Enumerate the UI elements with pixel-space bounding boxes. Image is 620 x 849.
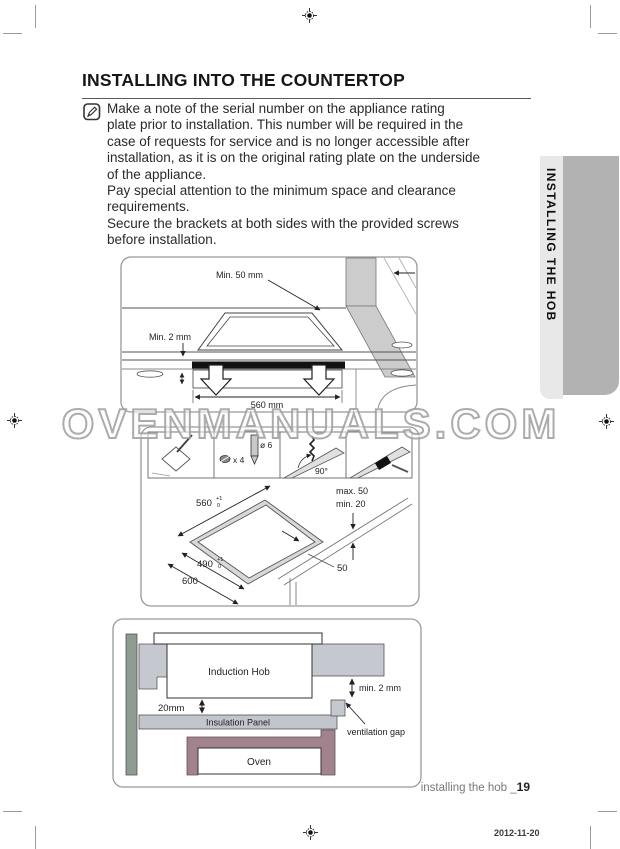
footer-label: installing the hob _: [421, 782, 517, 794]
svg-text:50: 50: [337, 563, 348, 574]
chapter-tab: INSTALLING THE HOB: [540, 156, 619, 399]
chapter-tab-shade: [563, 156, 619, 395]
dim-counter-depth: 600: [168, 564, 238, 604]
registration-mark-right: [599, 414, 614, 429]
svg-text:ventilation gap: ventilation gap: [347, 727, 405, 737]
crop-mark: [590, 826, 591, 849]
registration-mark-bottom: [303, 825, 318, 840]
crop-mark: [3, 33, 22, 34]
diagram-cross-section: Induction Hob Insulation Panel 20mm min.…: [112, 618, 422, 788]
chapter-tab-label: INSTALLING THE HOB: [544, 168, 558, 393]
svg-text:min. 2 mm: min. 2 mm: [359, 683, 401, 693]
footer: installing the hob _19: [300, 780, 530, 794]
manual-page: INSTALLING INTO THE COUNTERTOP Make a no…: [0, 0, 620, 849]
insert-arrows: [201, 365, 334, 395]
svg-text:0: 0: [218, 564, 221, 570]
svg-text:0: 0: [217, 503, 220, 509]
dim-min-50mm: Min. 50 mm: [216, 270, 415, 310]
induction-hob-label: Induction Hob: [208, 667, 270, 678]
diagram-wall-clearance: Min. 2 mm Min. 50 mm 560 mm: [120, 256, 418, 413]
cabinet-step: [331, 700, 345, 716]
watermark: OVENMANUALS.COM: [46, 400, 576, 448]
ventilation-gap-callout: ventilation gap: [346, 703, 405, 737]
diagram-cutout-dimensions: x 4 ø 6 90° 560 +1: [140, 426, 420, 607]
insulation-panel-label: Insulation Panel: [206, 718, 270, 728]
note-pencil-icon: [83, 103, 101, 121]
svg-text:+1: +1: [216, 496, 222, 502]
registration-mark-top: [302, 8, 317, 23]
isometric-counter: [190, 498, 412, 605]
dim-20mm: 20mm: [158, 700, 202, 714]
svg-text:90°: 90°: [315, 466, 328, 476]
cabinet-side-panel: [126, 634, 137, 775]
crop-mark: [35, 826, 36, 849]
footer-page-number: 19: [517, 780, 530, 794]
svg-text:Min. 2 mm: Min. 2 mm: [149, 332, 191, 342]
crop-mark: [598, 811, 617, 812]
page-title: INSTALLING INTO THE COUNTERTOP: [82, 70, 531, 99]
crop-mark: [3, 811, 22, 812]
svg-text:Min. 50 mm: Min. 50 mm: [216, 270, 263, 280]
countertop-right: [312, 644, 384, 676]
ceramic-glass-top: [154, 633, 322, 644]
oven-label: Oven: [247, 757, 271, 768]
hob-glass-outline: [198, 313, 342, 350]
svg-text:560: 560: [196, 498, 212, 509]
crop-mark: [598, 33, 617, 34]
svg-text:max. 50: max. 50: [336, 486, 368, 496]
dim-min-2mm: min. 2 mm: [352, 679, 401, 697]
wall: [346, 258, 416, 377]
print-date: 2012-11-20: [494, 828, 540, 838]
svg-text:+1: +1: [217, 557, 223, 563]
crop-mark: [590, 5, 591, 28]
crop-mark: [35, 5, 36, 28]
svg-text:490: 490: [197, 559, 213, 570]
svg-text:20mm: 20mm: [158, 703, 184, 714]
svg-text:min. 20: min. 20: [336, 499, 366, 509]
svg-text:x 4: x 4: [233, 455, 245, 465]
svg-text:600: 600: [182, 576, 198, 587]
note-text: Make a note of the serial number on the …: [107, 101, 539, 249]
registration-mark-left: [7, 413, 22, 428]
